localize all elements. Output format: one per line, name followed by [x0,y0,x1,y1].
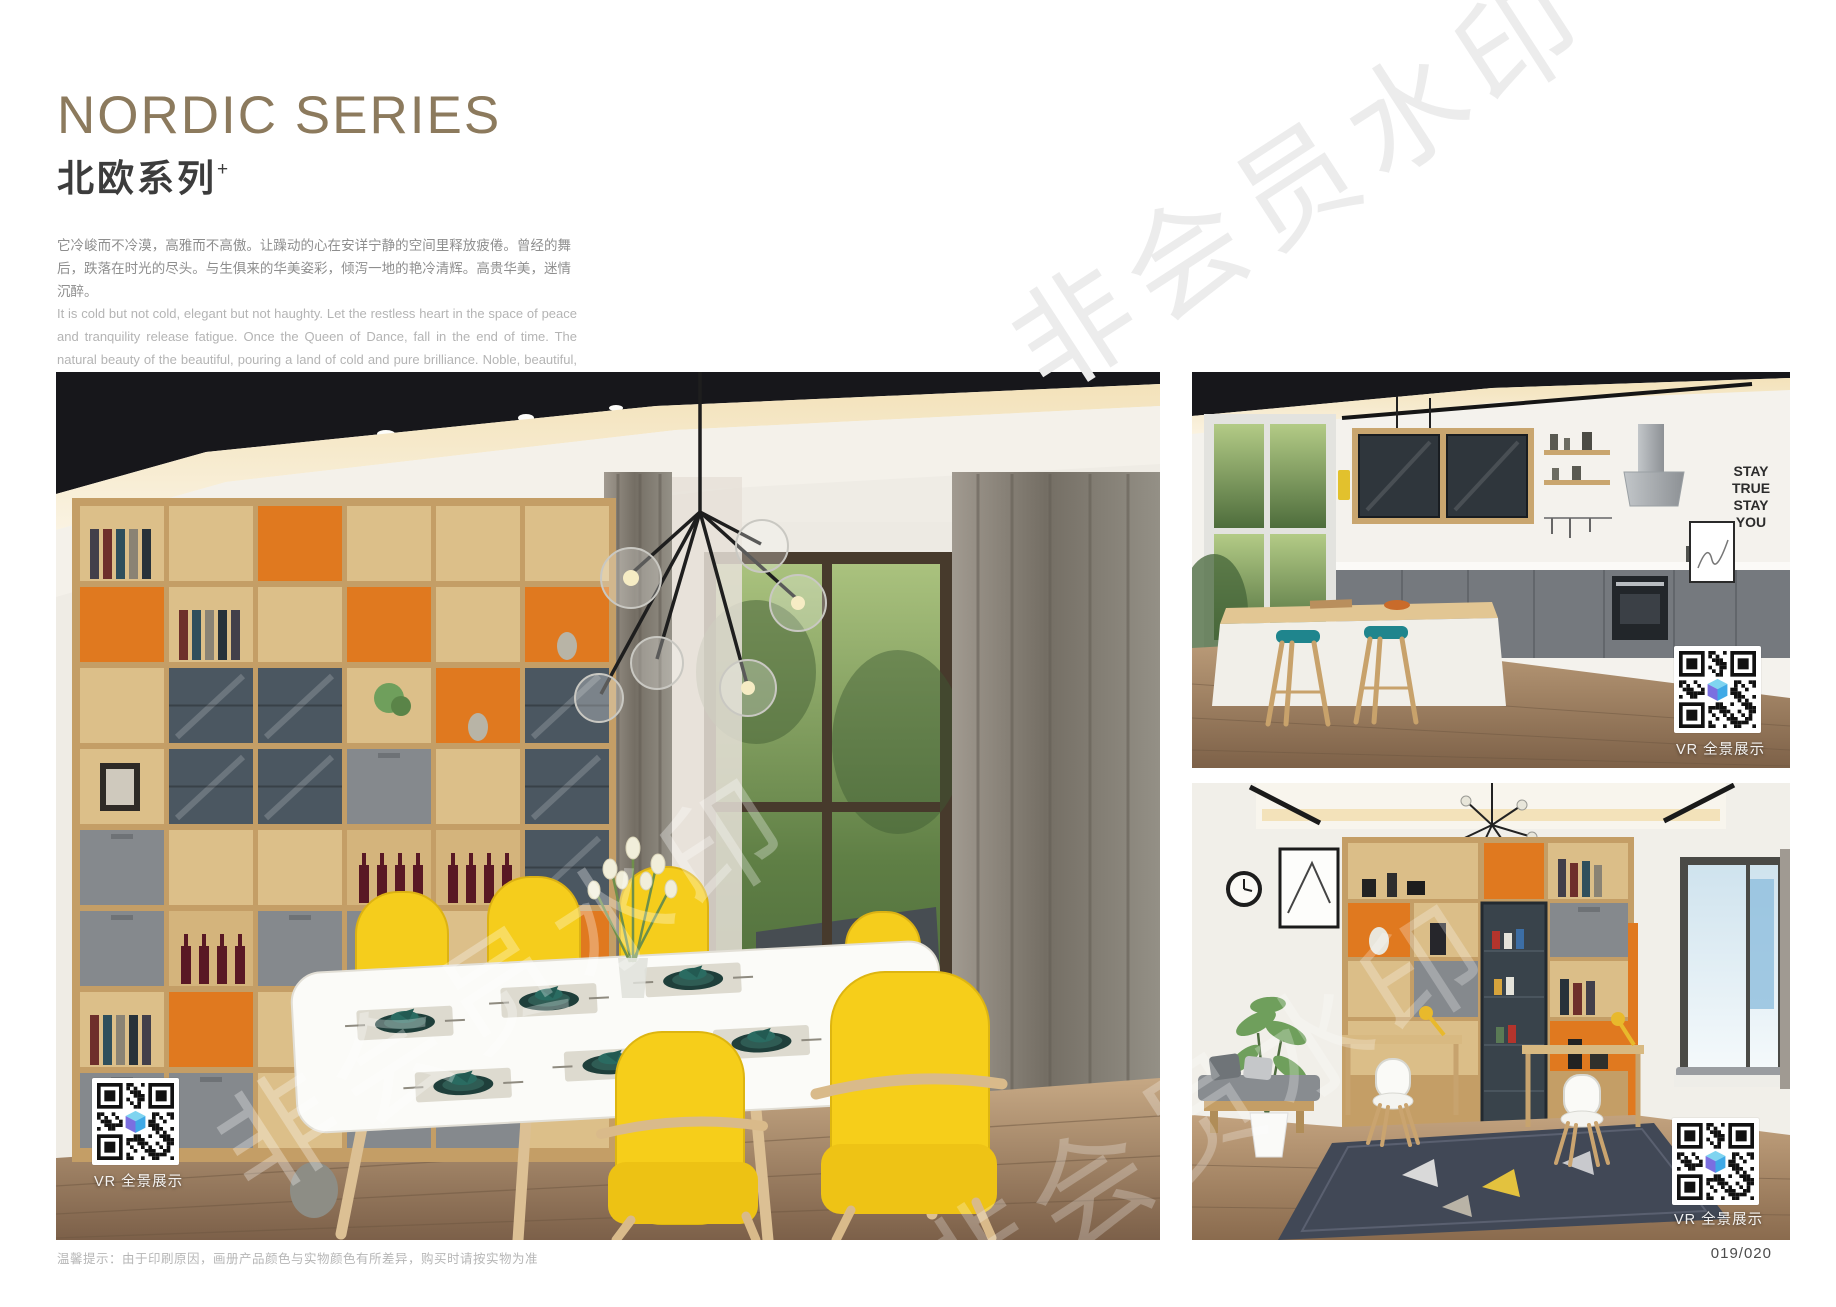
catalog-page: NORDIC SERIES 北欧系列+ 它冷峻而不冷漠，高雅而不高傲。让躁动的心… [0,0,1836,1307]
page-title: NORDIC SERIES [57,88,501,144]
vr-qr-code-kitchen [1674,646,1761,733]
photo-dining-room [56,372,1160,1240]
page-subtitle: 北欧系列+ [57,148,228,201]
svg-text:YOU: YOU [1736,514,1766,530]
study-window [1674,849,1790,1089]
footer-disclaimer: 温馨提示：由于印刷原因，画册产品颜色与实物颜色有所差异，购买时请按实物为准 [57,1248,538,1267]
svg-text:STAY: STAY [1733,497,1769,513]
leaning-art-frame [1690,522,1734,582]
vr-qr-code-study [1672,1118,1759,1205]
svg-text:TRUE: TRUE [1732,480,1770,496]
intro-paragraph-cn: 它冷峻而不冷漠，高雅而不高傲。让躁动的心在安详宁静的空间里释放疲倦。曾经的舞后，… [57,234,571,303]
page-number: 019/020 [1711,1245,1772,1262]
dining-chair-front-right [816,972,1002,1240]
watermark: 非会员水印 [973,0,1620,425]
dining-chair-front-left [601,1032,763,1240]
ceramic-pot [290,1162,338,1218]
wall-decal-stay-true: STAY TRUE STAY YOU [1732,463,1770,530]
vr-label-dining: VR 全景展示 [94,1170,183,1191]
svg-text:STAY: STAY [1733,463,1769,479]
subtitle-plus: + [217,159,228,180]
subtitle-text: 北欧系列 [57,158,217,199]
vr-label-kitchen: VR 全景展示 [1676,738,1765,759]
upper-cabinets [1338,428,1534,524]
vr-label-study: VR 全景展示 [1674,1208,1763,1229]
wall-clock [1228,873,1260,905]
vr-qr-code-dining [92,1078,179,1165]
art-frame [1280,849,1338,927]
